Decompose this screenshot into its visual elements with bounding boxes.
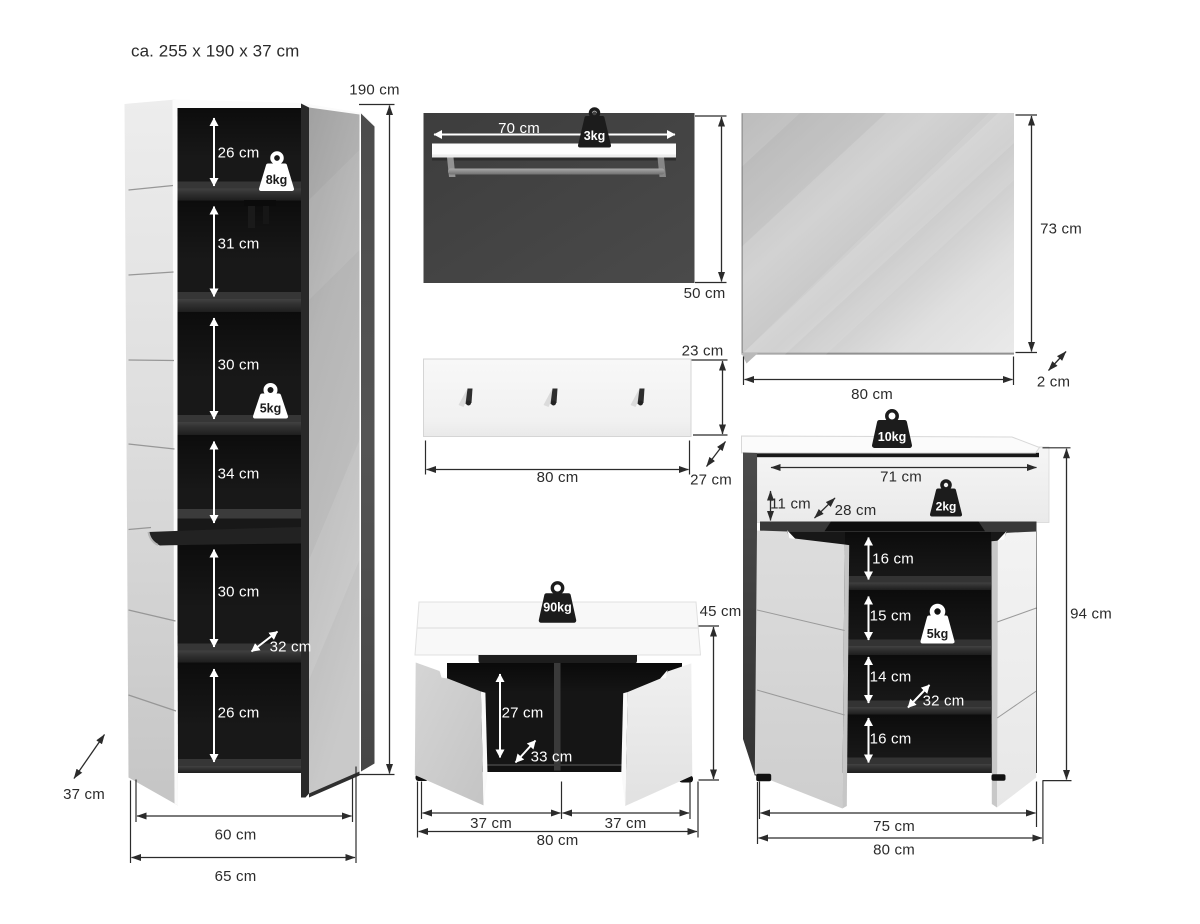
svg-text:60 cm: 60 cm bbox=[215, 827, 257, 844]
svg-text:27 cm: 27 cm bbox=[690, 472, 732, 489]
svg-text:37 cm: 37 cm bbox=[470, 815, 512, 832]
svg-text:11 cm: 11 cm bbox=[770, 496, 811, 513]
svg-text:90kg: 90kg bbox=[543, 601, 572, 615]
svg-text:65 cm: 65 cm bbox=[215, 868, 257, 885]
svg-text:5kg: 5kg bbox=[260, 402, 282, 416]
svg-text:27 cm: 27 cm bbox=[502, 705, 544, 722]
svg-text:16 cm: 16 cm bbox=[870, 731, 912, 748]
svg-text:2 cm: 2 cm bbox=[1037, 374, 1070, 391]
svg-text:14 cm: 14 cm bbox=[870, 669, 912, 686]
svg-text:3kg: 3kg bbox=[584, 129, 606, 143]
svg-text:23 cm: 23 cm bbox=[682, 343, 724, 360]
svg-text:71 cm: 71 cm bbox=[880, 469, 922, 486]
svg-text:32 cm: 32 cm bbox=[923, 693, 965, 710]
svg-text:80 cm: 80 cm bbox=[537, 832, 579, 849]
svg-text:37 cm: 37 cm bbox=[63, 786, 105, 803]
svg-text:80 cm: 80 cm bbox=[873, 842, 915, 859]
svg-text:26 cm: 26 cm bbox=[218, 705, 260, 722]
svg-text:30 cm: 30 cm bbox=[218, 584, 260, 601]
svg-text:10kg: 10kg bbox=[878, 430, 907, 444]
svg-text:73 cm: 73 cm bbox=[1040, 221, 1082, 238]
svg-text:80 cm: 80 cm bbox=[851, 386, 893, 403]
svg-text:45 cm: 45 cm bbox=[700, 603, 742, 620]
svg-text:ca. 255 x 190 x 37 cm: ca. 255 x 190 x 37 cm bbox=[131, 42, 299, 61]
svg-text:94 cm: 94 cm bbox=[1070, 606, 1112, 623]
svg-text:16 cm: 16 cm bbox=[872, 551, 914, 568]
svg-text:26 cm: 26 cm bbox=[218, 145, 260, 162]
svg-text:70 cm: 70 cm bbox=[498, 120, 540, 137]
svg-text:33 cm: 33 cm bbox=[531, 749, 573, 766]
svg-text:34 cm: 34 cm bbox=[218, 466, 260, 483]
svg-text:31 cm: 31 cm bbox=[218, 236, 260, 253]
svg-text:75 cm: 75 cm bbox=[873, 818, 915, 835]
svg-text:80 cm: 80 cm bbox=[537, 469, 579, 486]
svg-text:2kg: 2kg bbox=[936, 500, 957, 514]
svg-text:5kg: 5kg bbox=[927, 627, 949, 641]
svg-text:8kg: 8kg bbox=[266, 173, 288, 187]
svg-text:15 cm: 15 cm bbox=[870, 608, 912, 625]
svg-text:28 cm: 28 cm bbox=[835, 502, 877, 519]
svg-text:30 cm: 30 cm bbox=[218, 357, 260, 374]
svg-text:50 cm: 50 cm bbox=[684, 285, 726, 302]
svg-text:32 cm: 32 cm bbox=[270, 639, 312, 656]
svg-text:190 cm: 190 cm bbox=[349, 82, 399, 99]
svg-text:37 cm: 37 cm bbox=[605, 815, 647, 832]
